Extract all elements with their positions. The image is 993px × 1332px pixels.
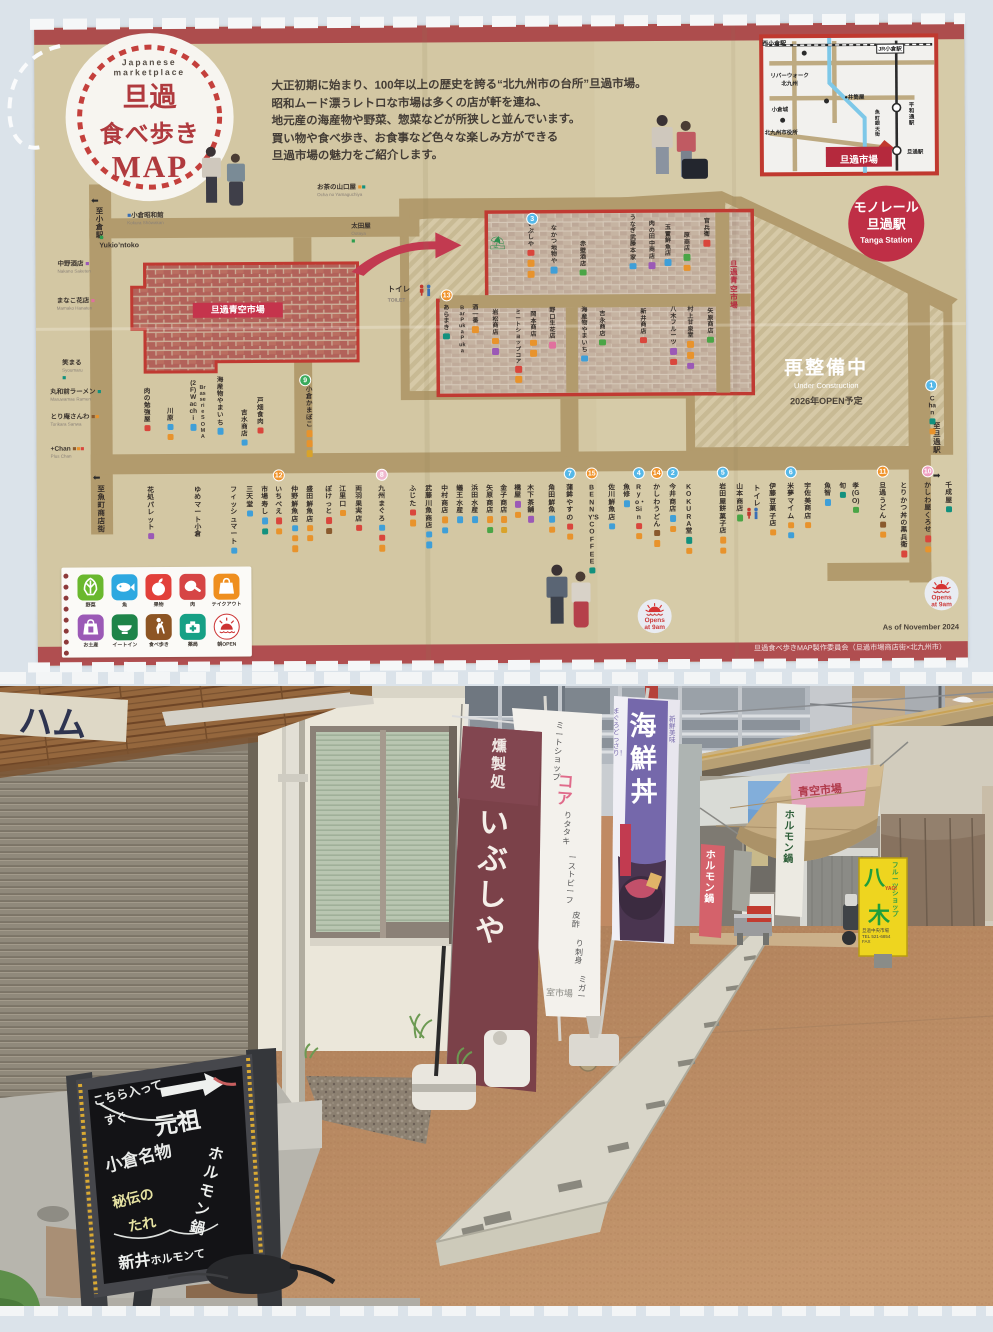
svg-text:at 9am: at 9am — [931, 601, 952, 608]
svg-text:at 9am: at 9am — [644, 624, 665, 631]
